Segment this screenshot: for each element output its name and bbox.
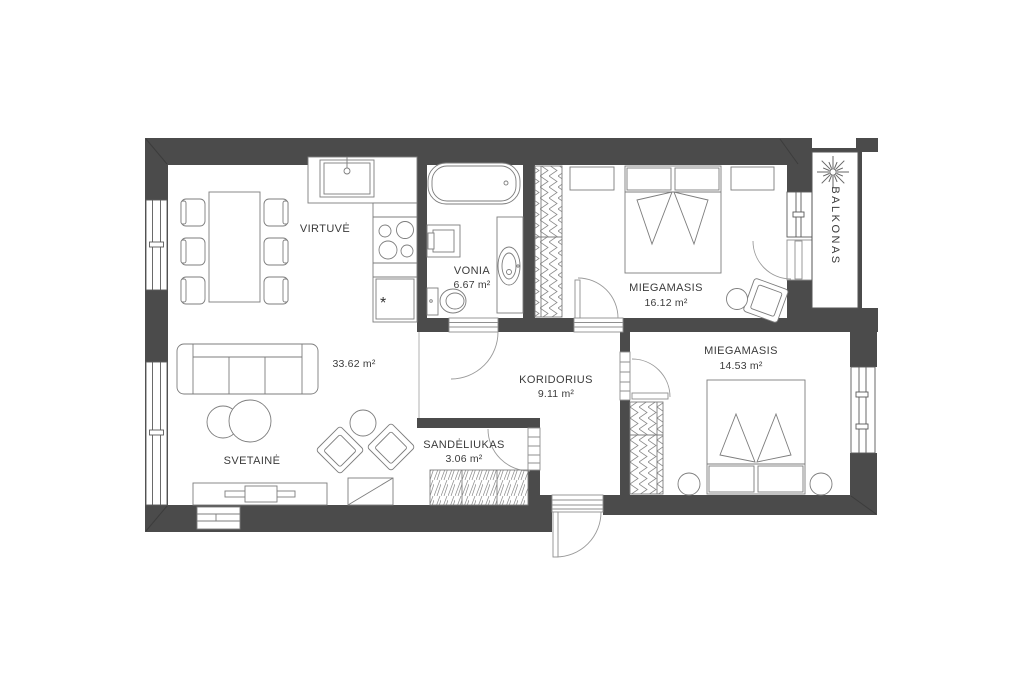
room-area-bedroom2: 14.53 m² (719, 360, 762, 372)
room-area-living: 33.62 m² (332, 358, 375, 370)
side-table-bedroom1 (727, 289, 748, 310)
room-label-bedroom2: MIEGAMASIS (704, 345, 778, 357)
door-bathroom (449, 318, 498, 379)
room-label-bedroom1: MIEGAMASIS (629, 282, 703, 294)
door-bedroom2 (620, 352, 670, 400)
nightstand-right (731, 167, 774, 190)
living-furniture (177, 344, 415, 529)
washing-machine (427, 225, 460, 257)
storage-shelves (430, 470, 528, 505)
window-bedroom1 (787, 192, 812, 237)
corner-unit (348, 478, 393, 505)
bathtub (428, 163, 520, 204)
room-label-bathroom: VONIA (454, 265, 490, 277)
tv-bench (193, 483, 327, 505)
nightstand-round-left (678, 473, 700, 495)
sofa (177, 344, 318, 394)
bed-bedroom2 (707, 380, 805, 494)
wardrobe-bedroom2 (630, 402, 663, 494)
room-label-kitchen: VIRTUVĖ (300, 223, 350, 235)
kitchen-sink (320, 157, 374, 197)
bed-bedroom1 (625, 166, 721, 273)
floor-plan: * (0, 0, 1024, 683)
window-living-bottom (146, 362, 167, 505)
room-label-corridor: KORIDORIUS (519, 374, 593, 386)
radiator (197, 507, 240, 529)
fridge: * (376, 279, 414, 319)
room-area-bedroom1: 16.12 m² (644, 297, 687, 309)
wardrobe-bedroom1 (535, 166, 562, 317)
armchair-bedroom1 (727, 278, 789, 323)
room-label-storage: SANDĖLIUKAS (423, 439, 504, 451)
fridge-symbol: * (380, 295, 386, 312)
window-bedroom2 (851, 367, 875, 453)
toilet (427, 288, 466, 315)
kitchen-furniture: * (181, 157, 417, 322)
bathroom-furniture (427, 163, 523, 315)
window-living-top (146, 200, 167, 290)
door-entrance (552, 495, 603, 557)
nightstand-left (570, 167, 614, 190)
floor-plan-drawing: * (0, 0, 1024, 683)
room-area-bathroom: 6.67 m² (454, 279, 491, 291)
room-area-storage: 3.06 m² (446, 453, 483, 465)
dining-table (209, 192, 260, 302)
door-balcony (753, 240, 812, 280)
nightstand-round-right (810, 473, 832, 495)
room-label-balcony: BALKONAS (829, 186, 841, 265)
room-label-living: SVETAINĖ (224, 455, 281, 467)
side-table-round (350, 410, 376, 436)
room-area-corridor: 9.11 m² (538, 388, 574, 400)
door-bedroom1 (574, 278, 623, 332)
coffee-table-large (229, 400, 271, 442)
vanity-sink (497, 217, 523, 313)
